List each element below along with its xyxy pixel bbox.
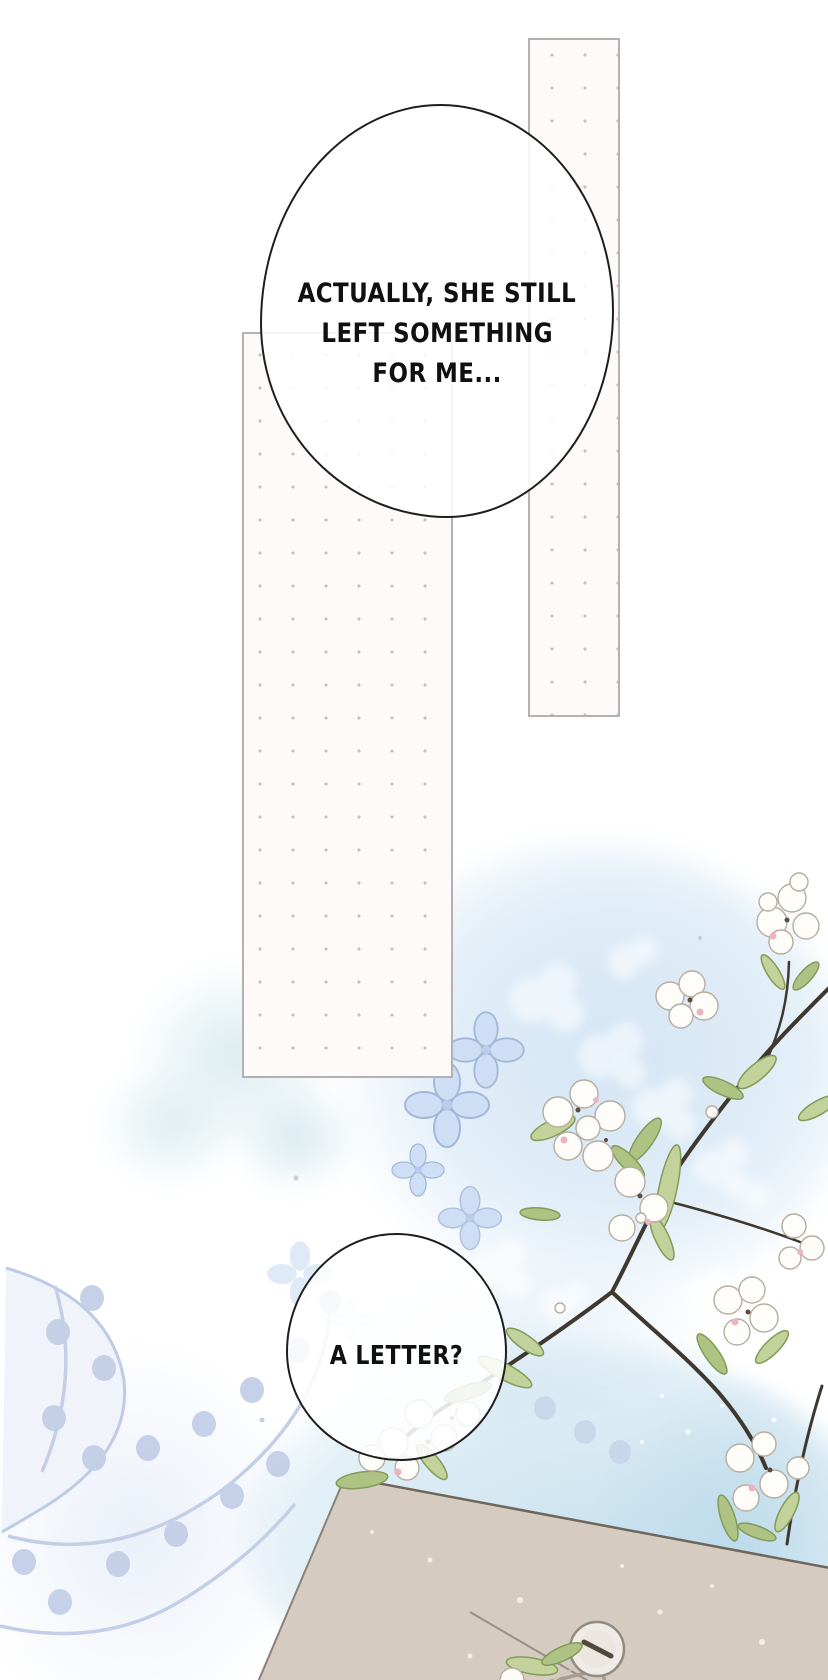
comic-page: ACTUALLY, SHE STILL LEFT SOMETHING FOR M… — [0, 0, 828, 1680]
pale-flower-blob-3 — [230, 1080, 360, 1195]
speech-bubble-1: ACTUALLY, SHE STILL LEFT SOMETHING FOR M… — [260, 104, 614, 518]
kraft-envelope — [258, 1477, 828, 1680]
branch-stems — [402, 962, 828, 1544]
sky-speckles — [640, 1378, 802, 1444]
pale-flower-blob-2 — [95, 1060, 245, 1190]
envelope-speckles — [370, 1530, 765, 1659]
bubble1-line3: FOR ME... — [372, 354, 501, 394]
bubble2-line1: A LETTER? — [330, 1339, 463, 1373]
watercolor-wash-bottom-right — [600, 1380, 828, 1680]
speech-bubble-2: A LETTER? — [286, 1233, 507, 1461]
bubble1-line1: ACTUALLY, SHE STILL — [298, 274, 577, 314]
bubble1-line2: LEFT SOMETHING — [321, 314, 553, 354]
envelope-flap-line — [470, 1612, 590, 1680]
watercolor-wash-bottom-left — [0, 1350, 300, 1680]
string-button-closure — [548, 1622, 624, 1680]
white-flower-silhouettes — [472, 937, 770, 1322]
